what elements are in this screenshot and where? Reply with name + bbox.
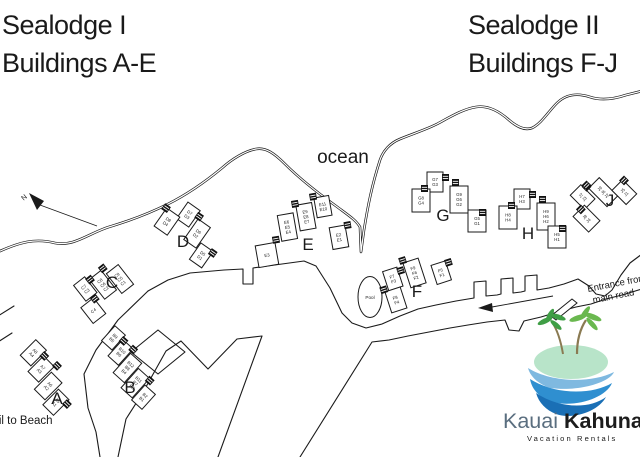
map-canvas: Sealodge I Buildings A-E Sealodge II Bui… [0,0,640,457]
building-F: F7F3F8F4F9F6F2F5F1 [372,243,461,314]
page-title-left-line1: Sealodge I [2,10,126,40]
logo-brand-kahuna: Kahuna [564,409,640,433]
stairwell-icon [559,225,566,232]
parking-diamond [131,330,185,374]
unit-label: H7H3 [519,194,525,204]
building-letter-A: A [51,389,63,408]
logo-brand-text: Kauai Kahuna [503,409,640,433]
trail-to-beach-label: Trail to Beach [0,415,53,427]
building-letter-G: G [436,206,449,225]
stairwell-icon [529,191,536,198]
building-letter-J: J [606,191,615,210]
stairwell-icon [479,209,486,216]
kauai-kahuna-logo: Kauai Kahuna Vacation Rentals [503,305,640,443]
unit-number: H1 [554,237,560,242]
stairwell-icon [442,174,449,181]
building-C: C4C7C3C8C6C2C9C5C1 [67,256,137,324]
stairwell-icon [291,200,299,208]
unit-label: G8G4 [418,196,424,206]
building-A: A8A4A7A3A6A2A5A1 [7,340,86,419]
page-title-right-line2: Buildings F-J [468,48,618,78]
entrance-label: Entrance from main road [586,273,640,307]
stairwell-icon [539,196,546,203]
unit-label: H5H1 [554,232,560,242]
unit-number: G1 [474,221,480,226]
unit-number: H2 [543,219,549,224]
unit-number: G4 [418,201,424,206]
pool: Pool [358,277,382,318]
unit-label: G7G3 [432,177,438,187]
stairwell-icon [508,202,515,209]
unit-label: G5G1 [474,216,480,226]
road-direction-arrow [478,296,553,312]
stairwell-icon [452,179,459,186]
unit-number: H3 [519,199,525,204]
building-letter-C: C [106,273,118,292]
logo-brand-kauai: Kauai [503,409,564,433]
building-J: J7J3J8J4J9J6J2J5J1 [561,159,639,237]
stairwell-icon [309,193,317,201]
stairwell-icon [421,185,428,192]
building-letter-H: H [522,224,534,243]
building-D: D7D3D8D4D6D2D5D1 [147,192,232,270]
stairwell-icon [52,361,62,371]
building-E: E3E6E5E4E9E8E7E11E10E2E1 [248,188,356,268]
logo-island [534,345,608,379]
north-label: N [20,194,28,203]
unit-label: G9G6G2 [456,192,462,207]
building-letter-E: E [302,235,313,254]
unit-label: H8H4 [505,213,511,223]
site-map: Sealodge I Buildings A-E Sealodge II Bui… [0,0,640,457]
unit-number: H4 [505,218,511,223]
building-letter-F: F [412,282,422,301]
north-arrow: N [20,193,97,226]
unit-number: G2 [456,202,462,207]
page-title-right-line1: Sealodge II [468,10,599,40]
stairwell-icon [272,236,280,244]
pool-label: Pool [365,295,374,300]
building-letter-B: B [124,378,135,397]
unit-label: H9H6H2 [543,209,549,224]
logo-tagline: Vacation Rentals [527,434,617,443]
ocean-label: ocean [317,147,369,168]
building-letter-D: D [177,232,189,251]
stairwell-icon [343,221,351,229]
unit-number: G3 [432,182,438,187]
page-title-left-line2: Buildings A-E [2,48,156,78]
